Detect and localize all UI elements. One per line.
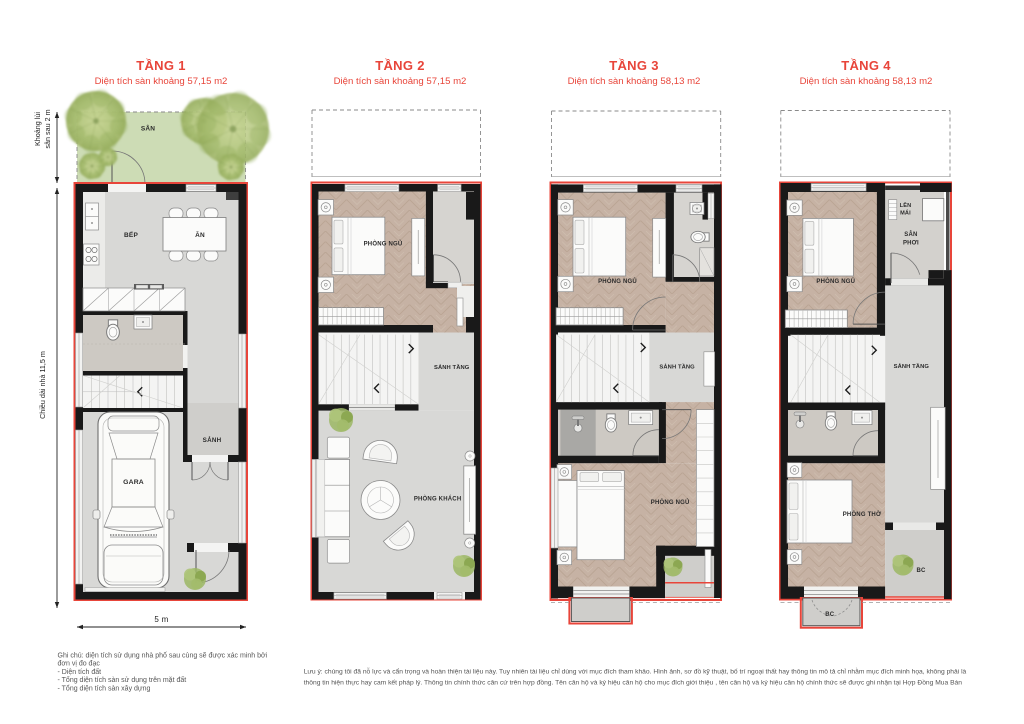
svg-text:Ghi chú: diện tích sử dụng nhà: Ghi chú: diện tích sử dụng nhà phố sau c… — [58, 651, 268, 660]
svg-text:SÂN: SÂN — [141, 124, 155, 133]
svg-text:TẦNG 2: TẦNG 2 — [375, 58, 424, 73]
svg-text:Khoảng lùi: Khoảng lùi — [33, 112, 42, 146]
svg-text:Diện tích sàn khoảng 58,13 m2: Diện tích sàn khoảng 58,13 m2 — [568, 76, 701, 87]
svg-text:đơn vị đo đạc: đơn vị đo đạc — [58, 661, 101, 668]
svg-text:PHÒNG KHÁCH: PHÒNG KHÁCH — [414, 495, 462, 503]
svg-text:LÊN: LÊN — [900, 201, 912, 209]
svg-text:GARA: GARA — [123, 479, 144, 486]
svg-text:- Tổng diện tích sàn sử dụng t: - Tổng diện tích sàn sử dụng trên mặt đấ… — [58, 675, 187, 684]
svg-text:PHÒNG NGỦ: PHÒNG NGỦ — [364, 240, 403, 248]
svg-text:5 m: 5 m — [154, 615, 168, 624]
svg-text:- Tổng diện tích sàn xây dựng: - Tổng diện tích sàn xây dựng — [58, 684, 151, 692]
svg-text:Diện tích sàn khoảng 58,13 m2: Diện tích sàn khoảng 58,13 m2 — [800, 76, 933, 87]
svg-text:BC: BC — [916, 568, 926, 574]
svg-text:TẦNG 4: TẦNG 4 — [841, 58, 891, 73]
svg-text:TẦNG 3: TẦNG 3 — [609, 58, 658, 73]
svg-text:PHÒNG NGỦ: PHÒNG NGỦ — [651, 498, 690, 506]
svg-text:SẢNH: SẢNH — [203, 435, 222, 444]
svg-text:PHÒNG NGỦ: PHÒNG NGỦ — [598, 277, 637, 285]
svg-text:BC: BC — [825, 612, 835, 618]
svg-text:ĂN: ĂN — [195, 230, 205, 239]
svg-text:Chiều dài nhà 11,5 m: Chiều dài nhà 11,5 m — [38, 351, 47, 419]
svg-text:Lưu ý: chúng tôi đã nỗ lực và: Lưu ý: chúng tôi đã nỗ lực và cẩn trọng … — [304, 667, 967, 676]
svg-text:SÂN: SÂN — [904, 231, 917, 238]
svg-text:Diện tích sàn khoảng 57,15 m2: Diện tích sàn khoảng 57,15 m2 — [95, 76, 228, 87]
svg-text:thông tin hiện thực hay cam kế: thông tin hiện thực hay cam kết pháp lý.… — [304, 677, 963, 686]
svg-text:PHƠI: PHƠI — [903, 241, 919, 247]
svg-text:PHÒNG NGỦ: PHÒNG NGỦ — [816, 277, 855, 285]
svg-text:sân sau 2 m: sân sau 2 m — [43, 109, 52, 148]
svg-text:SẢNH TẦNG: SẢNH TẦNG — [894, 363, 930, 370]
svg-text:SẢNH TẦNG: SẢNH TẦNG — [659, 363, 695, 370]
svg-text:PHÒNG THỜ: PHÒNG THỜ — [843, 510, 882, 518]
svg-text:TẦNG 1: TẦNG 1 — [136, 58, 185, 73]
svg-text:Diện tích sàn khoảng 57,15 m2: Diện tích sàn khoảng 57,15 m2 — [334, 76, 467, 87]
svg-text:MÁI: MÁI — [900, 210, 911, 217]
svg-text:SẢNH TẦNG: SẢNH TẦNG — [434, 364, 470, 371]
svg-text:- Diện tích đất: - Diện tích đất — [58, 667, 102, 676]
